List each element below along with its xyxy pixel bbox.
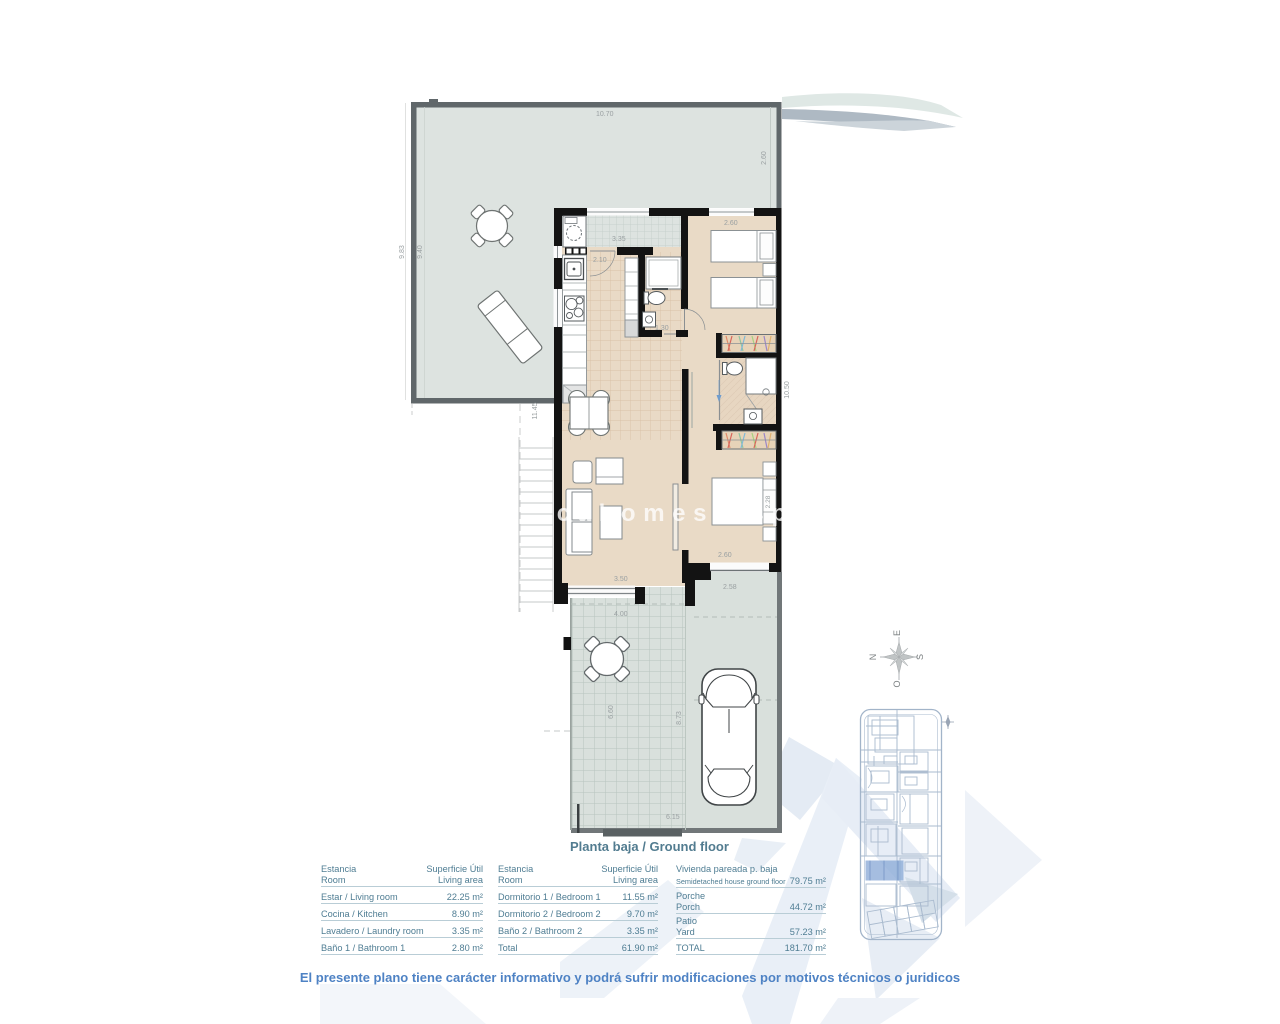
svg-text:Vivienda pareada p. baja: Vivienda pareada p. baja <box>676 864 778 874</box>
svg-text:Room: Room <box>498 875 523 885</box>
svg-text:2.60: 2.60 <box>724 220 738 227</box>
svg-text:El presente plano tiene caráct: El presente plano tiene carácter informa… <box>300 970 960 985</box>
svg-text:2.60: 2.60 <box>718 552 732 559</box>
svg-text:2.60: 2.60 <box>761 151 768 165</box>
svg-text:Porch: Porch <box>676 902 700 912</box>
svg-text:Superficie Útil: Superficie Útil <box>426 864 483 874</box>
svg-text:Lavadero / Laundry room: Lavadero / Laundry room <box>321 926 424 936</box>
svg-text:Estancia: Estancia <box>321 864 357 874</box>
svg-text:Estancia: Estancia <box>498 864 534 874</box>
svg-text:6.15: 6.15 <box>666 814 680 821</box>
svg-text:Baño 1 / Bathroom 1: Baño 1 / Bathroom 1 <box>321 943 405 953</box>
svg-text:61.90 m²: 61.90 m² <box>622 943 658 953</box>
svg-text:2.28: 2.28 <box>765 495 772 508</box>
svg-text:11.45: 11.45 <box>532 402 539 419</box>
svg-text:10.70: 10.70 <box>596 111 614 118</box>
svg-text:11.55 m²: 11.55 m² <box>622 892 658 902</box>
svg-text:costablancahomesinspain.com: costablancahomesinspain.com <box>376 500 937 527</box>
svg-text:Room: Room <box>321 875 346 885</box>
svg-text:Cocina / Kitchen: Cocina / Kitchen <box>321 909 388 919</box>
svg-text:9.83: 9.83 <box>399 245 406 259</box>
svg-text:Living area: Living area <box>613 875 659 885</box>
svg-text:S: S <box>915 654 925 660</box>
svg-text:44.72 m²: 44.72 m² <box>790 902 826 912</box>
svg-text:2.58: 2.58 <box>723 584 737 591</box>
svg-text:8.90 m²: 8.90 m² <box>452 909 483 919</box>
svg-text:1.30: 1.30 <box>655 325 669 332</box>
svg-text:Porche: Porche <box>676 891 705 901</box>
svg-text:Baño 2 / Bathroom 2: Baño 2 / Bathroom 2 <box>498 926 582 936</box>
svg-text:Dormitorio 1 / Bedroom 1: Dormitorio 1 / Bedroom 1 <box>498 892 601 902</box>
svg-text:9.40: 9.40 <box>417 245 424 259</box>
svg-text:10.50: 10.50 <box>784 381 791 399</box>
svg-text:57.23 m²: 57.23 m² <box>790 927 826 937</box>
svg-text:Dormitorio 2 / Bedroom 2: Dormitorio 2 / Bedroom 2 <box>498 909 601 919</box>
svg-text:Semidetached house ground floo: Semidetached house ground floor <box>676 877 786 886</box>
svg-text:Yard: Yard <box>676 927 695 937</box>
svg-text:2.80 m²: 2.80 m² <box>452 943 483 953</box>
svg-text:N: N <box>868 654 878 661</box>
svg-text:6.60: 6.60 <box>608 705 615 719</box>
svg-text:22.25 m²: 22.25 m² <box>447 892 483 902</box>
svg-text:9.70 m²: 9.70 m² <box>627 909 658 919</box>
svg-text:Total: Total <box>498 943 517 953</box>
svg-text:Planta baja / Ground floor: Planta baja / Ground floor <box>570 839 729 854</box>
svg-text:Living area: Living area <box>438 875 484 885</box>
svg-text:Superficie Útil: Superficie Útil <box>601 864 658 874</box>
svg-text:79.75 m²: 79.75 m² <box>790 876 826 886</box>
svg-text:2.10: 2.10 <box>593 257 607 264</box>
svg-text:8.73: 8.73 <box>676 711 683 725</box>
svg-text:181.70 m²: 181.70 m² <box>785 943 826 953</box>
svg-text:4.00: 4.00 <box>614 611 628 618</box>
svg-text:TOTAL: TOTAL <box>676 943 705 953</box>
svg-text:Patio: Patio <box>676 916 697 926</box>
svg-text:3.35 m²: 3.35 m² <box>452 926 483 936</box>
svg-text:E: E <box>892 630 902 636</box>
svg-text:3.35: 3.35 <box>612 236 626 243</box>
svg-text:3.50: 3.50 <box>614 576 628 583</box>
svg-text:Estar / Living room: Estar / Living room <box>321 892 398 902</box>
svg-text:3.35 m²: 3.35 m² <box>627 926 658 936</box>
svg-text:O: O <box>892 680 902 687</box>
